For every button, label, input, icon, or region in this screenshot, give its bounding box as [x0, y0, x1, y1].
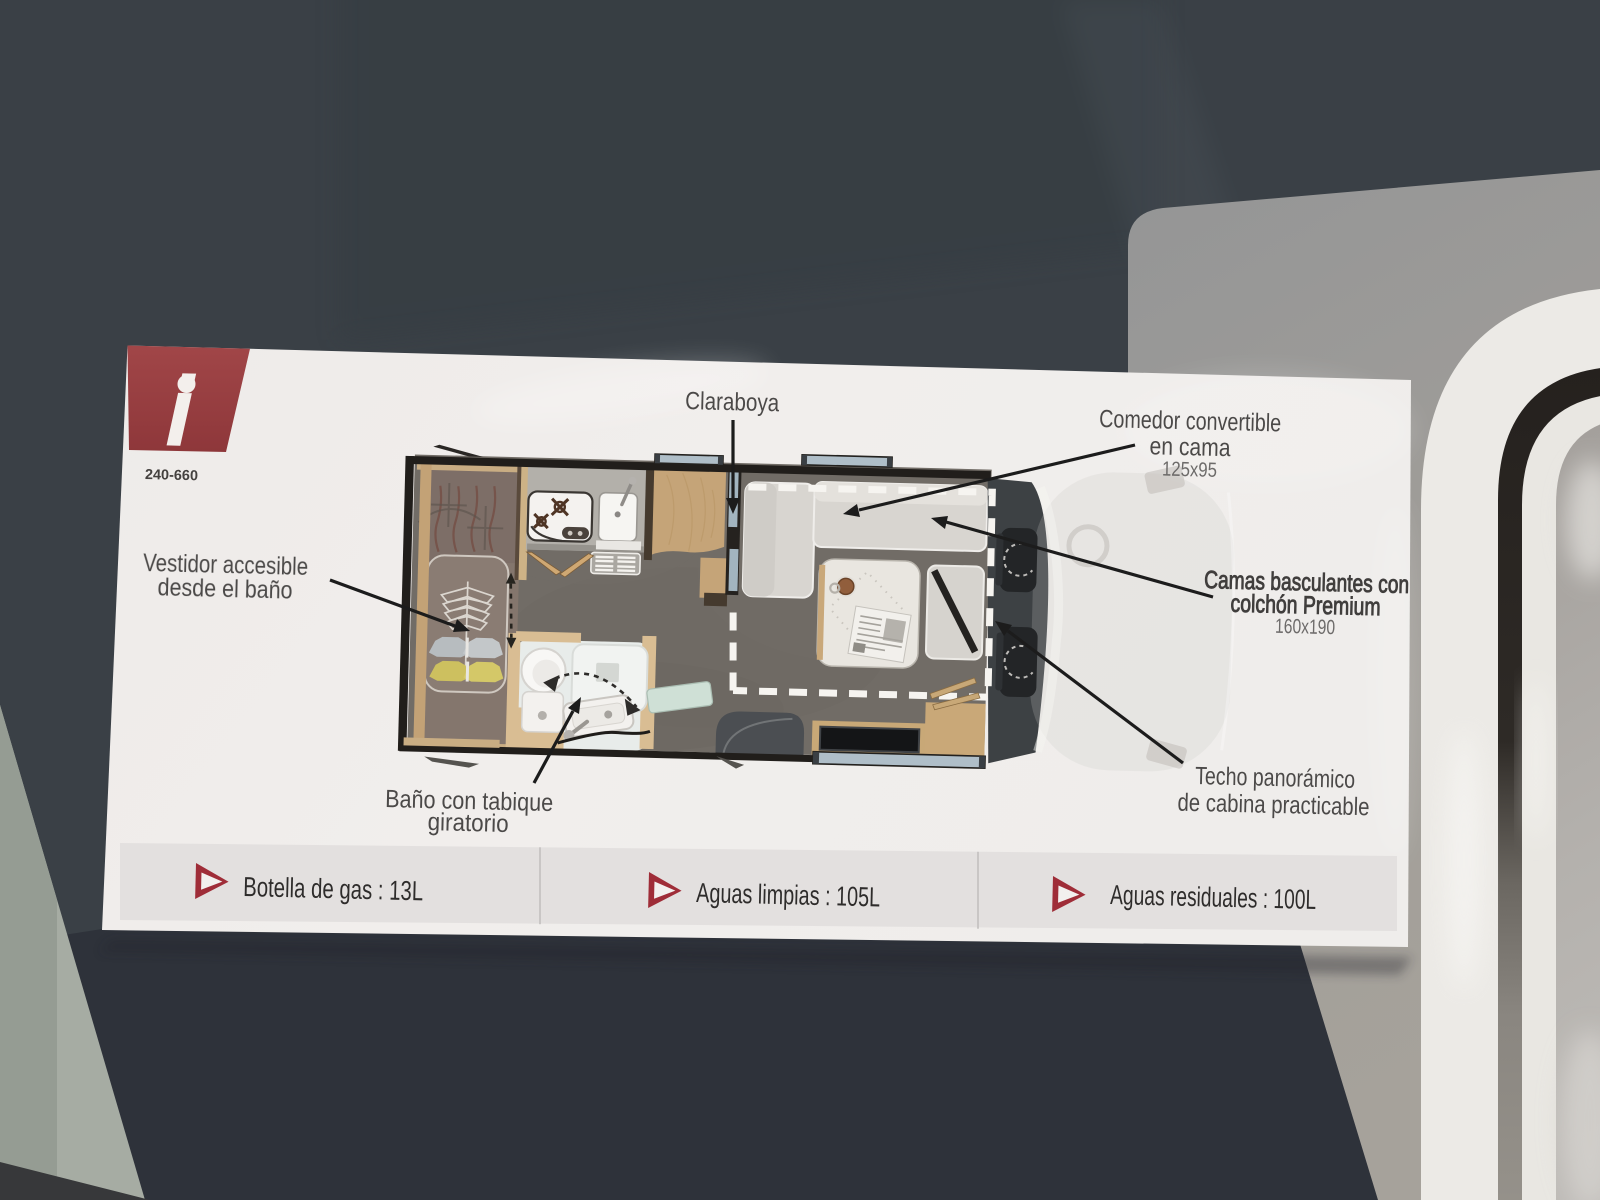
svg-text:Aguas residuales : 100L: Aguas residuales : 100L [1110, 879, 1317, 915]
svg-text:desde el baño: desde el baño [157, 573, 293, 604]
svg-text:i: i [164, 355, 197, 468]
svg-text:240-660: 240-660 [145, 467, 198, 484]
svg-text:125x95: 125x95 [1162, 458, 1218, 482]
svg-text:de cabina practicable: de cabina practicable [1177, 789, 1370, 822]
svg-text:Claraboya: Claraboya [685, 387, 780, 417]
svg-text:Botella de gas : 13L: Botella de gas : 13L [243, 871, 424, 906]
svg-text:160x190: 160x190 [1275, 615, 1336, 639]
svg-text:Aguas limpias : 105L: Aguas limpias : 105L [696, 877, 881, 912]
svg-text:giratorio: giratorio [427, 808, 509, 838]
